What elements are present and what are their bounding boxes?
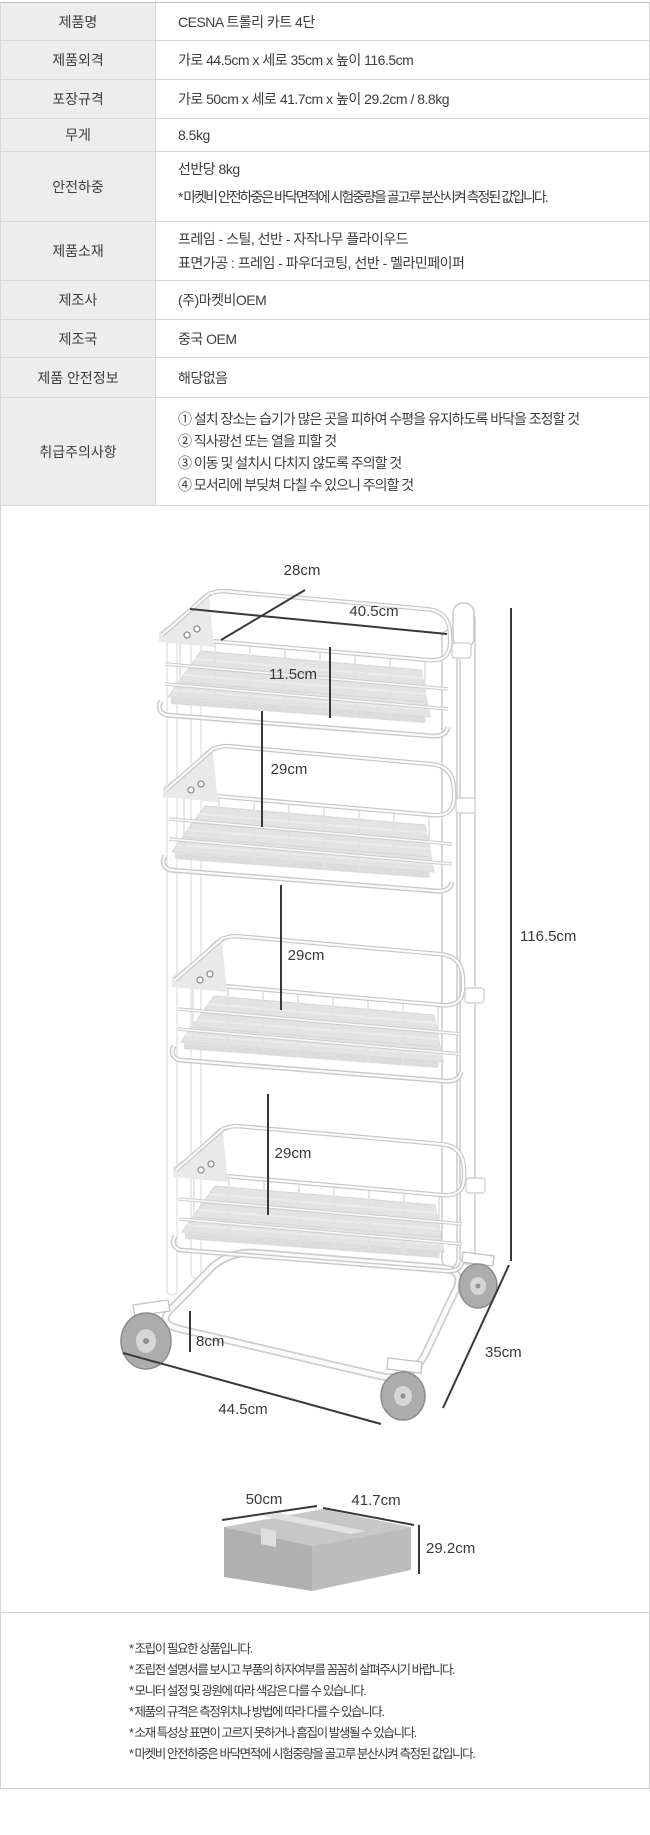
svg-text:40.5cm: 40.5cm (349, 603, 398, 620)
svg-text:50cm: 50cm (246, 1491, 283, 1508)
svg-text:35cm: 35cm (485, 1344, 522, 1361)
svg-text:41.7cm: 41.7cm (351, 1492, 400, 1509)
svg-text:29.2cm: 29.2cm (426, 1540, 475, 1557)
svg-text:44.5cm: 44.5cm (218, 1401, 267, 1418)
svg-text:29cm: 29cm (271, 761, 308, 778)
svg-text:29cm: 29cm (275, 1145, 312, 1162)
svg-text:116.5cm: 116.5cm (520, 928, 576, 945)
svg-text:11.5cm: 11.5cm (269, 666, 317, 683)
svg-text:29cm: 29cm (288, 947, 325, 964)
svg-text:8cm: 8cm (196, 1333, 224, 1350)
svg-text:28cm: 28cm (284, 562, 321, 579)
